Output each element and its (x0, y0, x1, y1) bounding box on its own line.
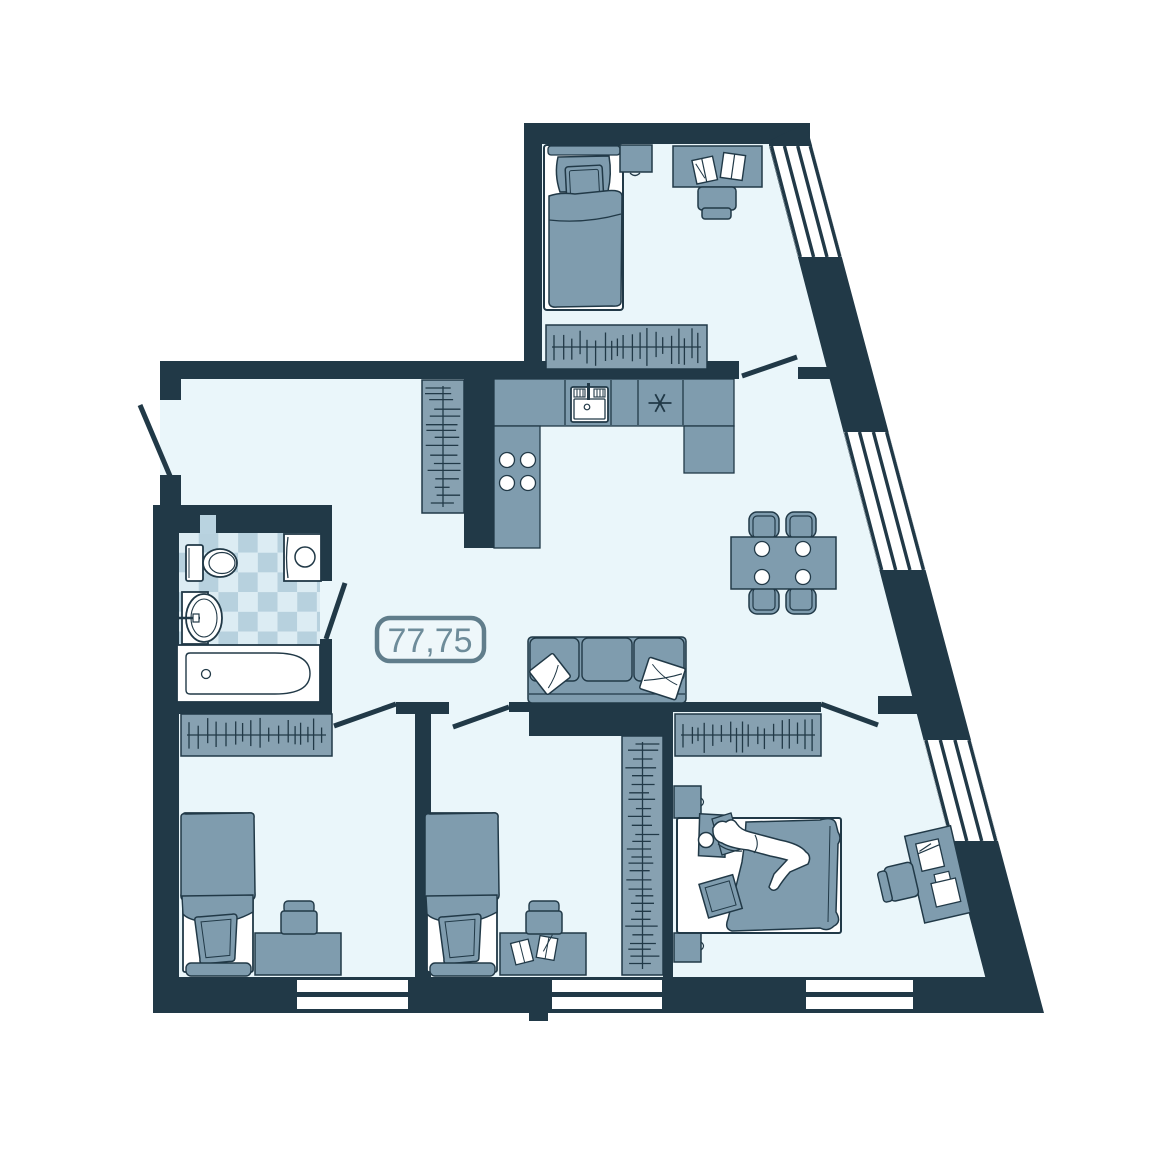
svg-text:77,75: 77,75 (387, 622, 472, 660)
